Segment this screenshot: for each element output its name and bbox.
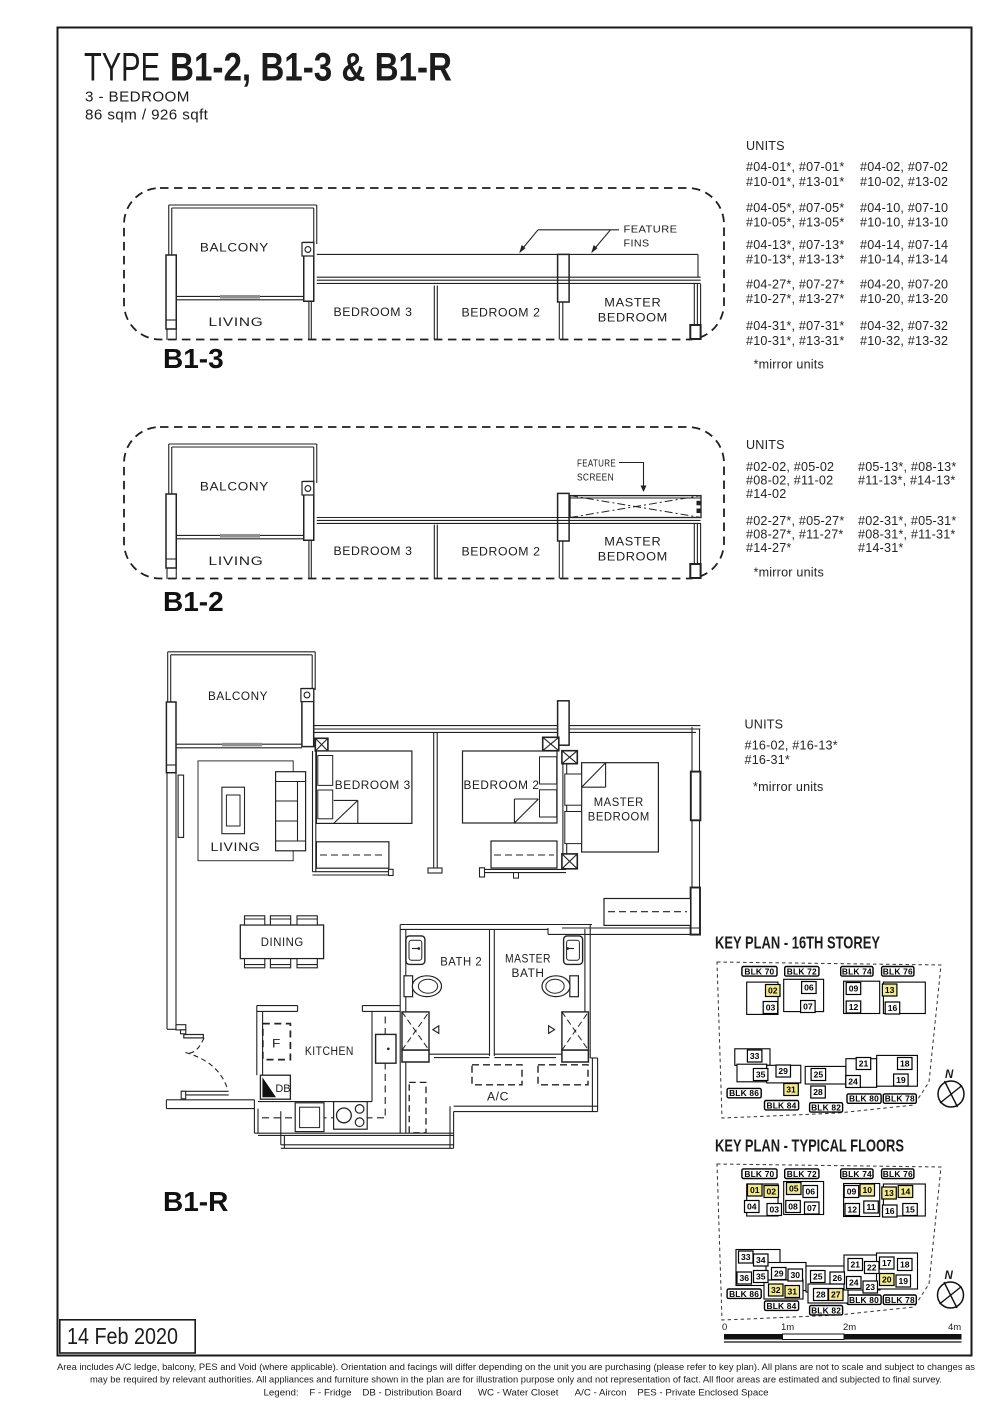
svg-text:13: 13 <box>885 985 895 995</box>
svg-text:Area includes A/C ledge, balco: Area includes A/C ledge, balcony, PES an… <box>57 1362 975 1373</box>
svg-text:33: 33 <box>750 1051 760 1061</box>
svg-text:32: 32 <box>771 1285 781 1295</box>
svg-text:BLK 76: BLK 76 <box>883 967 913 977</box>
svg-text:#10-01*, #13-01*: #10-01*, #13-01* <box>746 175 844 189</box>
svg-text:BLK 80: BLK 80 <box>849 1295 879 1305</box>
svg-text:07: 07 <box>803 1002 813 1012</box>
svg-text:#04-13*, #07-13*: #04-13*, #07-13* <box>746 238 844 252</box>
svg-text:05: 05 <box>789 1184 799 1194</box>
svg-text:N: N <box>945 1270 954 1282</box>
svg-text:BLK 82: BLK 82 <box>811 1103 841 1113</box>
svg-text:03: 03 <box>766 1003 776 1013</box>
svg-text:FINS: FINS <box>624 239 650 250</box>
svg-text:19: 19 <box>896 1075 906 1085</box>
svg-text:4m: 4m <box>948 1322 961 1333</box>
svg-text:#10-13*, #13-13*: #10-13*, #13-13* <box>746 253 844 267</box>
svg-text:UNITS: UNITS <box>745 718 784 732</box>
svg-text:23: 23 <box>866 1282 876 1292</box>
svg-text:09: 09 <box>847 1187 857 1197</box>
svg-text:#04-20, #07-20: #04-20, #07-20 <box>860 278 948 292</box>
svg-text:#02-02, #05-02: #02-02, #05-02 <box>746 460 834 474</box>
svg-text:#08-27*, #11-27*: #08-27*, #11-27* <box>746 528 844 542</box>
svg-text:01: 01 <box>750 1185 760 1195</box>
svg-text:UNITS: UNITS <box>746 139 785 153</box>
svg-text:#10-14, #13-14: #10-14, #13-14 <box>860 253 948 267</box>
svg-text:21: 21 <box>851 1260 861 1270</box>
svg-text:31: 31 <box>786 1085 796 1095</box>
svg-text:#04-10, #07-10: #04-10, #07-10 <box>860 201 948 215</box>
svg-text:02: 02 <box>768 986 778 996</box>
svg-text:#10-27*, #13-27*: #10-27*, #13-27* <box>746 292 844 306</box>
svg-text:35: 35 <box>756 1070 766 1080</box>
svg-text:33: 33 <box>741 1252 751 1262</box>
svg-text:36: 36 <box>740 1273 750 1283</box>
svg-text:16: 16 <box>888 1003 898 1013</box>
svg-text:F: F <box>272 1037 281 1051</box>
svg-text:BLK 74: BLK 74 <box>842 967 872 977</box>
svg-text:TYPE: TYPE <box>84 46 160 90</box>
svg-text:#10-32, #13-32: #10-32, #13-32 <box>860 334 948 348</box>
svg-text:BLK 86: BLK 86 <box>729 1088 759 1098</box>
svg-text:#14-02: #14-02 <box>746 487 786 501</box>
svg-text:BATH: BATH <box>512 966 545 980</box>
svg-text:29: 29 <box>778 1066 788 1076</box>
svg-text:27: 27 <box>831 1290 841 1300</box>
svg-text:BEDROOM: BEDROOM <box>588 810 650 824</box>
svg-text:BLK 86: BLK 86 <box>729 1289 759 1299</box>
svg-text:MASTER: MASTER <box>505 952 551 966</box>
svg-text:15: 15 <box>905 1205 915 1215</box>
svg-text:22: 22 <box>867 1263 877 1273</box>
svg-text:3 - BEDROOM: 3 - BEDROOM <box>85 89 190 106</box>
svg-text:BLK 74: BLK 74 <box>842 1169 872 1179</box>
svg-text:BLK 72: BLK 72 <box>787 967 817 977</box>
svg-text:26: 26 <box>833 1273 843 1283</box>
svg-text:N: N <box>945 1069 954 1081</box>
svg-text:#14-31*: #14-31* <box>858 541 904 555</box>
svg-text:03: 03 <box>770 1205 780 1215</box>
svg-text:#14-27*: #14-27* <box>746 541 792 555</box>
svg-text:#11-13*, #14-13*: #11-13*, #14-13* <box>858 474 956 488</box>
svg-text:#04-31*, #07-31*: #04-31*, #07-31* <box>746 319 844 333</box>
svg-text:#10-31*, #13-31*: #10-31*, #13-31* <box>746 334 844 348</box>
svg-text:#04-01*, #07-01*: #04-01*, #07-01* <box>746 160 844 174</box>
svg-text:BEDROOM 3: BEDROOM 3 <box>335 778 411 792</box>
svg-text:06: 06 <box>804 983 814 993</box>
svg-text:BLK 70: BLK 70 <box>744 1169 774 1179</box>
svg-text:BATH 2: BATH 2 <box>440 954 482 968</box>
svg-text:35: 35 <box>756 1272 766 1282</box>
svg-text:*mirror units: *mirror units <box>754 566 824 580</box>
svg-text:18: 18 <box>900 1260 910 1270</box>
svg-text:BALCONY: BALCONY <box>208 689 268 703</box>
svg-text:24: 24 <box>848 1077 858 1087</box>
svg-text:#02-27*, #05-27*: #02-27*, #05-27* <box>746 514 844 528</box>
svg-text:07: 07 <box>807 1203 817 1213</box>
svg-text:B1-2: B1-2 <box>163 586 224 617</box>
svg-text:#16-02, #16-13*: #16-02, #16-13* <box>745 739 838 753</box>
svg-text:28: 28 <box>813 1087 823 1097</box>
svg-text:BLK 70: BLK 70 <box>744 967 774 977</box>
svg-text:B1-R: B1-R <box>163 1186 228 1217</box>
svg-text:16: 16 <box>885 1206 895 1216</box>
svg-text:25: 25 <box>813 1272 823 1282</box>
svg-text:#10-10, #13-10: #10-10, #13-10 <box>860 216 948 230</box>
svg-text:#16-31*: #16-31* <box>745 753 791 767</box>
svg-text:86 sqm / 926 sqft: 86 sqm / 926 sqft <box>85 107 209 124</box>
svg-text:18: 18 <box>900 1059 910 1069</box>
svg-text:FEATURE: FEATURE <box>577 459 616 470</box>
svg-text:#10-20, #13-20: #10-20, #13-20 <box>860 292 948 306</box>
svg-text:SCREEN: SCREEN <box>577 473 614 484</box>
svg-text:KEY PLAN - TYPICAL FLOORS: KEY PLAN - TYPICAL FLOORS <box>715 1136 904 1156</box>
svg-text:LIVING: LIVING <box>211 840 261 854</box>
svg-text:28: 28 <box>816 1290 826 1300</box>
svg-text:06: 06 <box>806 1187 816 1197</box>
svg-text:1m: 1m <box>781 1322 794 1333</box>
svg-text:#05-13*, #08-13*: #05-13*, #08-13* <box>858 460 956 474</box>
svg-text:21: 21 <box>859 1059 869 1069</box>
svg-text:#08-31*, #11-31*: #08-31*, #11-31* <box>858 528 956 542</box>
svg-text:BLK 84: BLK 84 <box>766 1301 796 1311</box>
svg-text:#04-14, #07-14: #04-14, #07-14 <box>860 238 948 252</box>
svg-text:MASTER: MASTER <box>594 795 644 809</box>
svg-text:BLK 78: BLK 78 <box>885 1094 915 1104</box>
svg-text:BLK 82: BLK 82 <box>811 1305 841 1315</box>
svg-text:UNITS: UNITS <box>746 438 785 452</box>
svg-text:BLK 76: BLK 76 <box>883 1169 913 1179</box>
svg-text:2m: 2m <box>843 1322 856 1333</box>
svg-text:B1-3: B1-3 <box>163 343 224 374</box>
svg-text:24: 24 <box>849 1278 859 1288</box>
svg-text:#04-02, #07-02: #04-02, #07-02 <box>860 160 948 174</box>
svg-text:FEATURE: FEATURE <box>624 225 678 236</box>
svg-text:B1-2, B1-3 & B1-R: B1-2, B1-3 & B1-R <box>170 46 452 90</box>
svg-text:31: 31 <box>788 1287 798 1297</box>
svg-text:#10-02, #13-02: #10-02, #13-02 <box>860 175 948 189</box>
svg-text:#04-27*, #07-27*: #04-27*, #07-27* <box>746 278 844 292</box>
svg-text:12: 12 <box>848 1205 858 1215</box>
svg-text:14 Feb 2020: 14 Feb 2020 <box>67 1323 178 1349</box>
svg-text:may be required by relevant au: may be required by relevant authorities.… <box>90 1375 942 1386</box>
svg-text:34: 34 <box>756 1255 766 1265</box>
svg-text:Legend: F - Fridge DB -: Legend: F - Fridge DB - Distribution Boa… <box>264 1388 769 1399</box>
svg-text:13: 13 <box>884 1188 894 1198</box>
svg-text:#04-05*, #07-05*: #04-05*, #07-05* <box>746 201 844 215</box>
svg-text:25: 25 <box>814 1070 824 1080</box>
svg-text:19: 19 <box>899 1276 909 1286</box>
svg-text:DB: DB <box>275 1083 290 1095</box>
svg-text:08: 08 <box>788 1202 798 1212</box>
svg-text:#10-05*, #13-05*: #10-05*, #13-05* <box>746 216 844 230</box>
svg-text:10: 10 <box>863 1185 873 1195</box>
svg-text:BEDROOM 2: BEDROOM 2 <box>464 778 540 792</box>
svg-text:*mirror units: *mirror units <box>753 780 823 794</box>
svg-text:A/C: A/C <box>487 1090 509 1104</box>
svg-text:KEY PLAN - 16TH STOREY: KEY PLAN - 16TH STOREY <box>715 933 880 953</box>
svg-text:04: 04 <box>747 1202 757 1212</box>
svg-text:BLK 72: BLK 72 <box>787 1169 817 1179</box>
svg-text:#02-31*, #05-31*: #02-31*, #05-31* <box>858 514 956 528</box>
svg-text:11: 11 <box>866 1202 875 1212</box>
svg-text:02: 02 <box>767 1187 777 1197</box>
svg-text:30: 30 <box>791 1270 801 1280</box>
svg-text:BLK 80: BLK 80 <box>849 1094 879 1104</box>
svg-text:09: 09 <box>849 984 859 994</box>
svg-text:DINING: DINING <box>261 935 304 949</box>
svg-text:14: 14 <box>901 1187 911 1197</box>
svg-text:BLK 84: BLK 84 <box>766 1100 796 1110</box>
svg-text:#08-02, #11-02: #08-02, #11-02 <box>746 474 833 488</box>
svg-text:29: 29 <box>774 1269 784 1279</box>
svg-text:17: 17 <box>882 1258 892 1268</box>
svg-text:KITCHEN: KITCHEN <box>305 1044 354 1058</box>
svg-text:20: 20 <box>882 1275 892 1285</box>
svg-text:*mirror units: *mirror units <box>754 358 824 372</box>
svg-text:#04-32, #07-32: #04-32, #07-32 <box>860 319 948 333</box>
svg-text:12: 12 <box>849 1002 859 1012</box>
svg-text:0: 0 <box>722 1322 727 1333</box>
svg-text:BLK 78: BLK 78 <box>885 1295 915 1305</box>
